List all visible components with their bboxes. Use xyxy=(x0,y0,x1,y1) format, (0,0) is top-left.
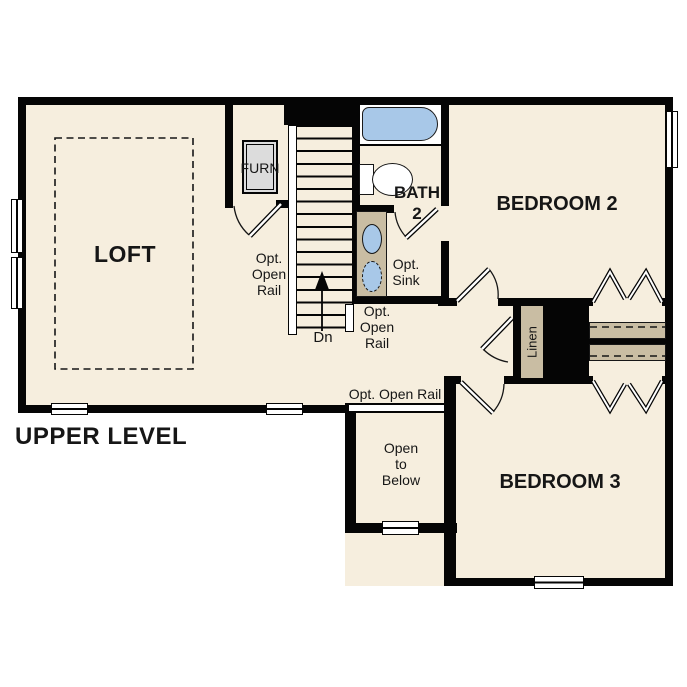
stairs-direction-arrow xyxy=(315,271,330,331)
bedroom3-door-swing xyxy=(461,382,504,413)
opt-open-rail-inline-label: Opt. Open Rail xyxy=(345,386,445,402)
bedroom2-door-swing xyxy=(457,269,498,301)
floor-plan: Linen xyxy=(0,0,687,687)
bedroom3-bifold-door xyxy=(593,381,662,410)
open-to-below-label: Open to Below xyxy=(371,440,431,488)
opt-open-rail-left-label: Opt. Open Rail xyxy=(239,250,299,298)
furnace-door-swing xyxy=(234,204,281,236)
page-title: UPPER LEVEL xyxy=(15,423,265,451)
furnace-label: FURN xyxy=(235,160,285,176)
plan-linework xyxy=(0,0,687,687)
stairs-down-label: Dn xyxy=(303,330,343,346)
opt-sink-label: Opt. Sink xyxy=(382,256,430,288)
loft-label: LOFT xyxy=(85,241,165,268)
opt-open-rail-right-label: Opt. Open Rail xyxy=(347,303,407,351)
linen-door-swing xyxy=(482,318,512,362)
bedroom2-label: BEDROOM 2 xyxy=(457,193,657,216)
bedroom3-label: BEDROOM 3 xyxy=(460,471,660,494)
bedroom2-bifold-door xyxy=(593,272,662,302)
bath-label: BATH 2 xyxy=(387,182,447,224)
